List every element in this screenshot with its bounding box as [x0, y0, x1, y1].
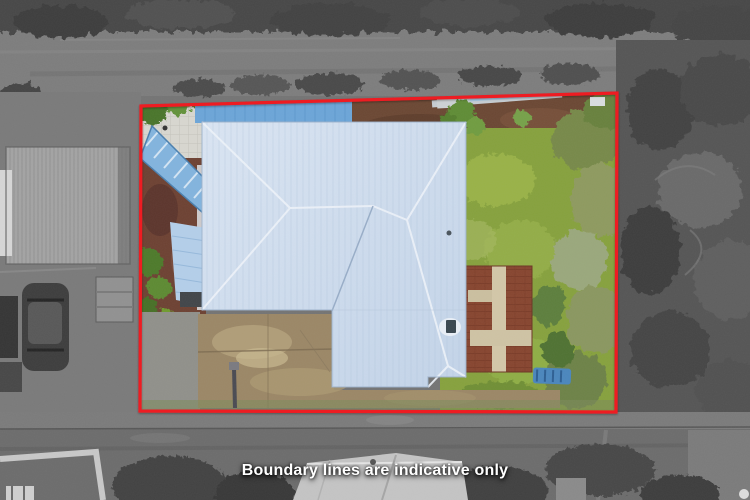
- aerial-photo: [0, 0, 750, 500]
- photo-grain: [0, 0, 750, 500]
- listing-photo: Boundary lines are indicative only: [0, 0, 750, 500]
